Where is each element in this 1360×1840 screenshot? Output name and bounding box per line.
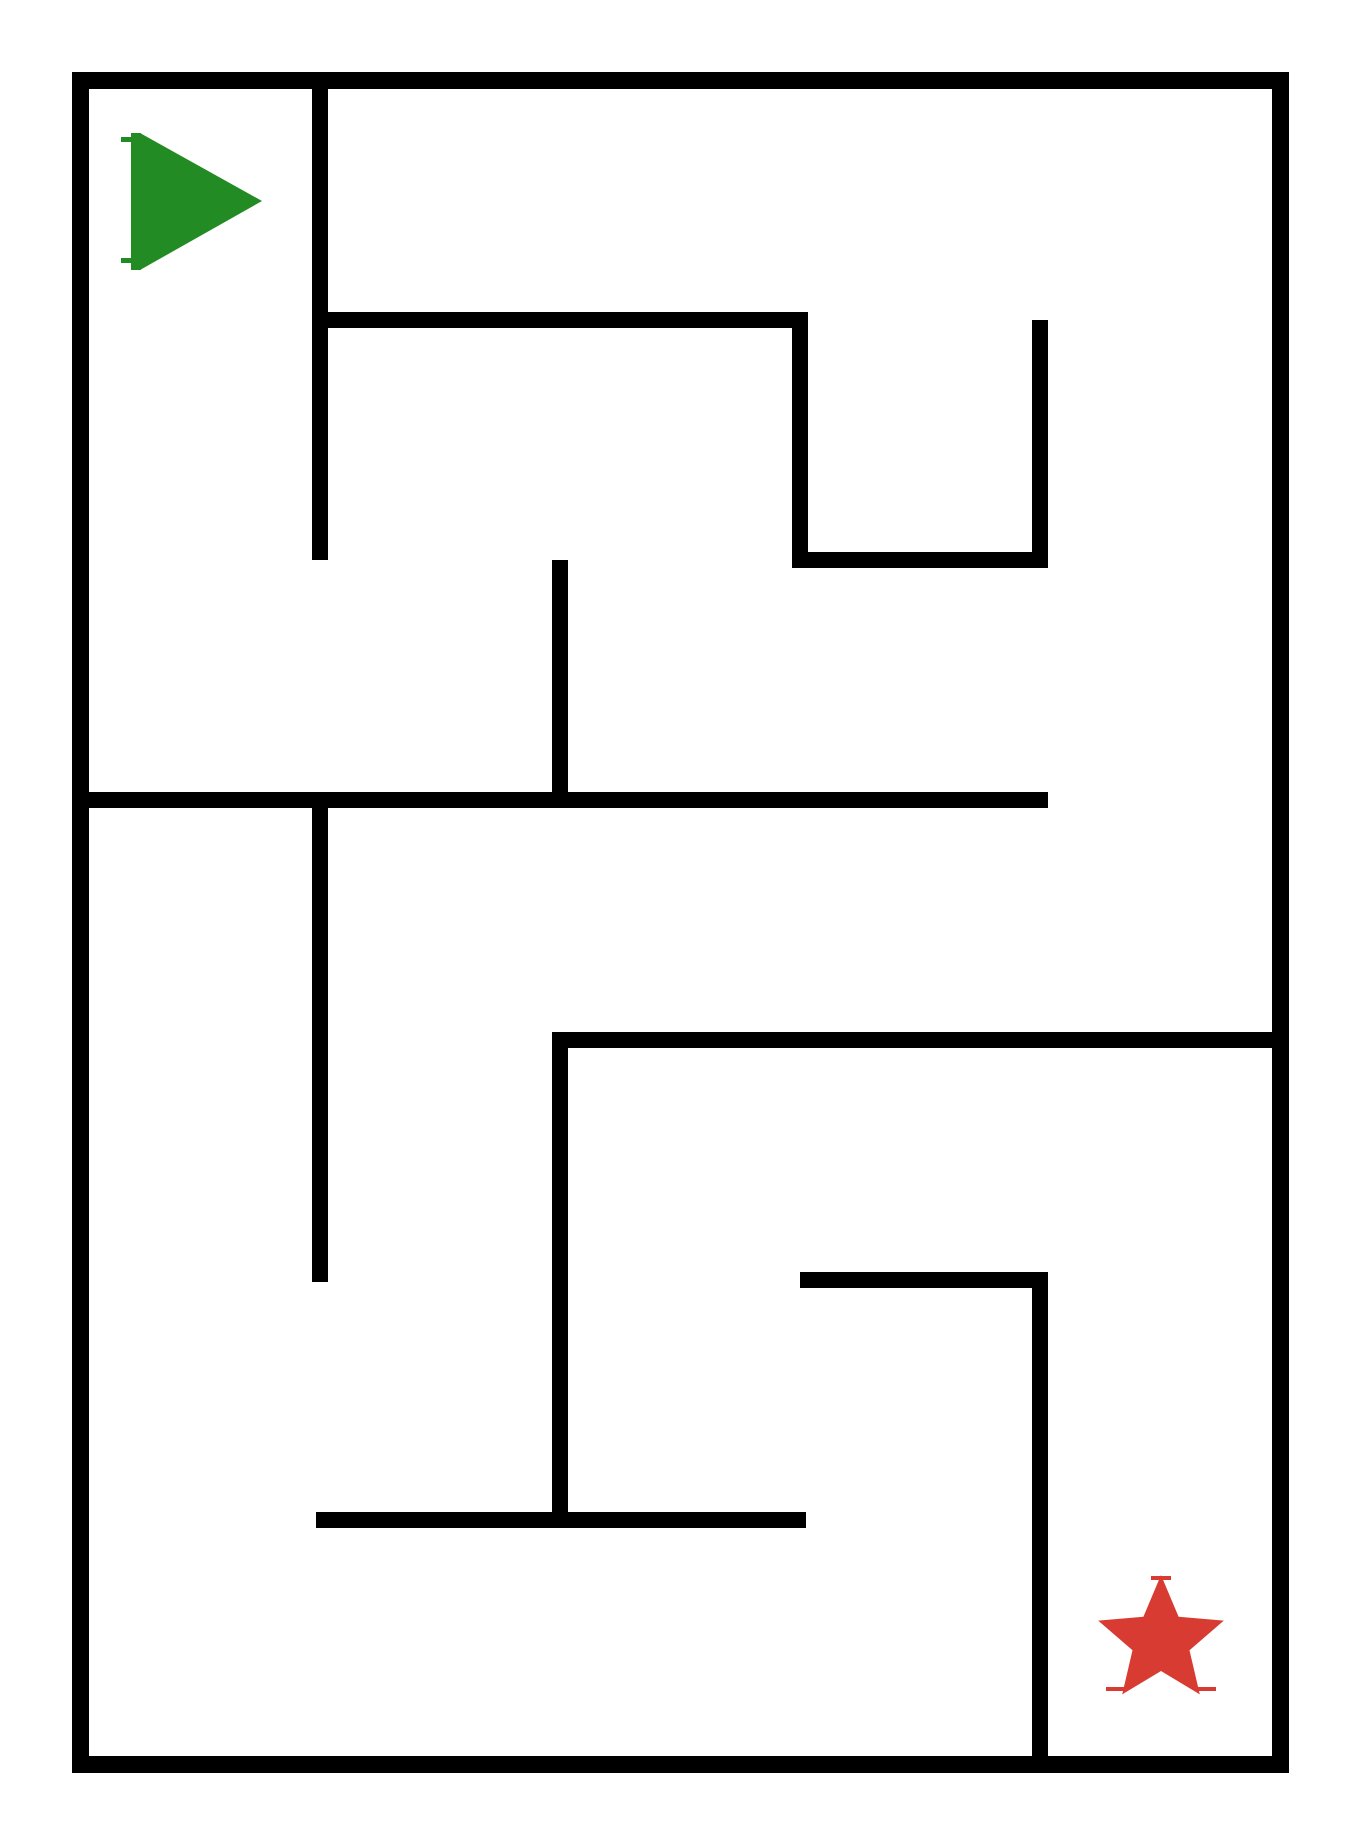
goal-star-tick [1194, 1687, 1216, 1691]
goal-star-tick [1106, 1687, 1128, 1691]
start-marker-icon[interactable] [121, 133, 262, 270]
border-top [72, 72, 1289, 89]
border-right [1272, 72, 1289, 1773]
goal-star [1098, 1575, 1224, 1694]
wall-h1 [312, 312, 808, 328]
start-triangle[interactable] [140, 133, 262, 270]
start-triangle-stem[interactable] [131, 133, 141, 270]
border-left [72, 72, 89, 1773]
wall-v4 [552, 560, 568, 808]
start-triangle-tick [121, 137, 133, 142]
goal-star-icon [1098, 1575, 1224, 1694]
wall-v7 [1032, 1280, 1048, 1764]
wall-h5 [800, 1272, 1048, 1288]
maze-page [0, 0, 1360, 1840]
start-triangle-tick [121, 258, 133, 263]
wall-v6 [552, 1040, 568, 1528]
maze-svg [0, 0, 1360, 1840]
border-bottom [72, 1756, 1289, 1773]
wall-h3 [80, 792, 1048, 808]
wall-h2 [792, 552, 1048, 568]
goal-star-tick [1151, 1576, 1171, 1580]
wall-v5 [312, 800, 328, 1282]
wall-h4 [552, 1032, 1280, 1048]
wall-h6 [316, 1512, 806, 1528]
wall-v3 [1032, 320, 1048, 568]
wall-v2 [792, 312, 808, 560]
